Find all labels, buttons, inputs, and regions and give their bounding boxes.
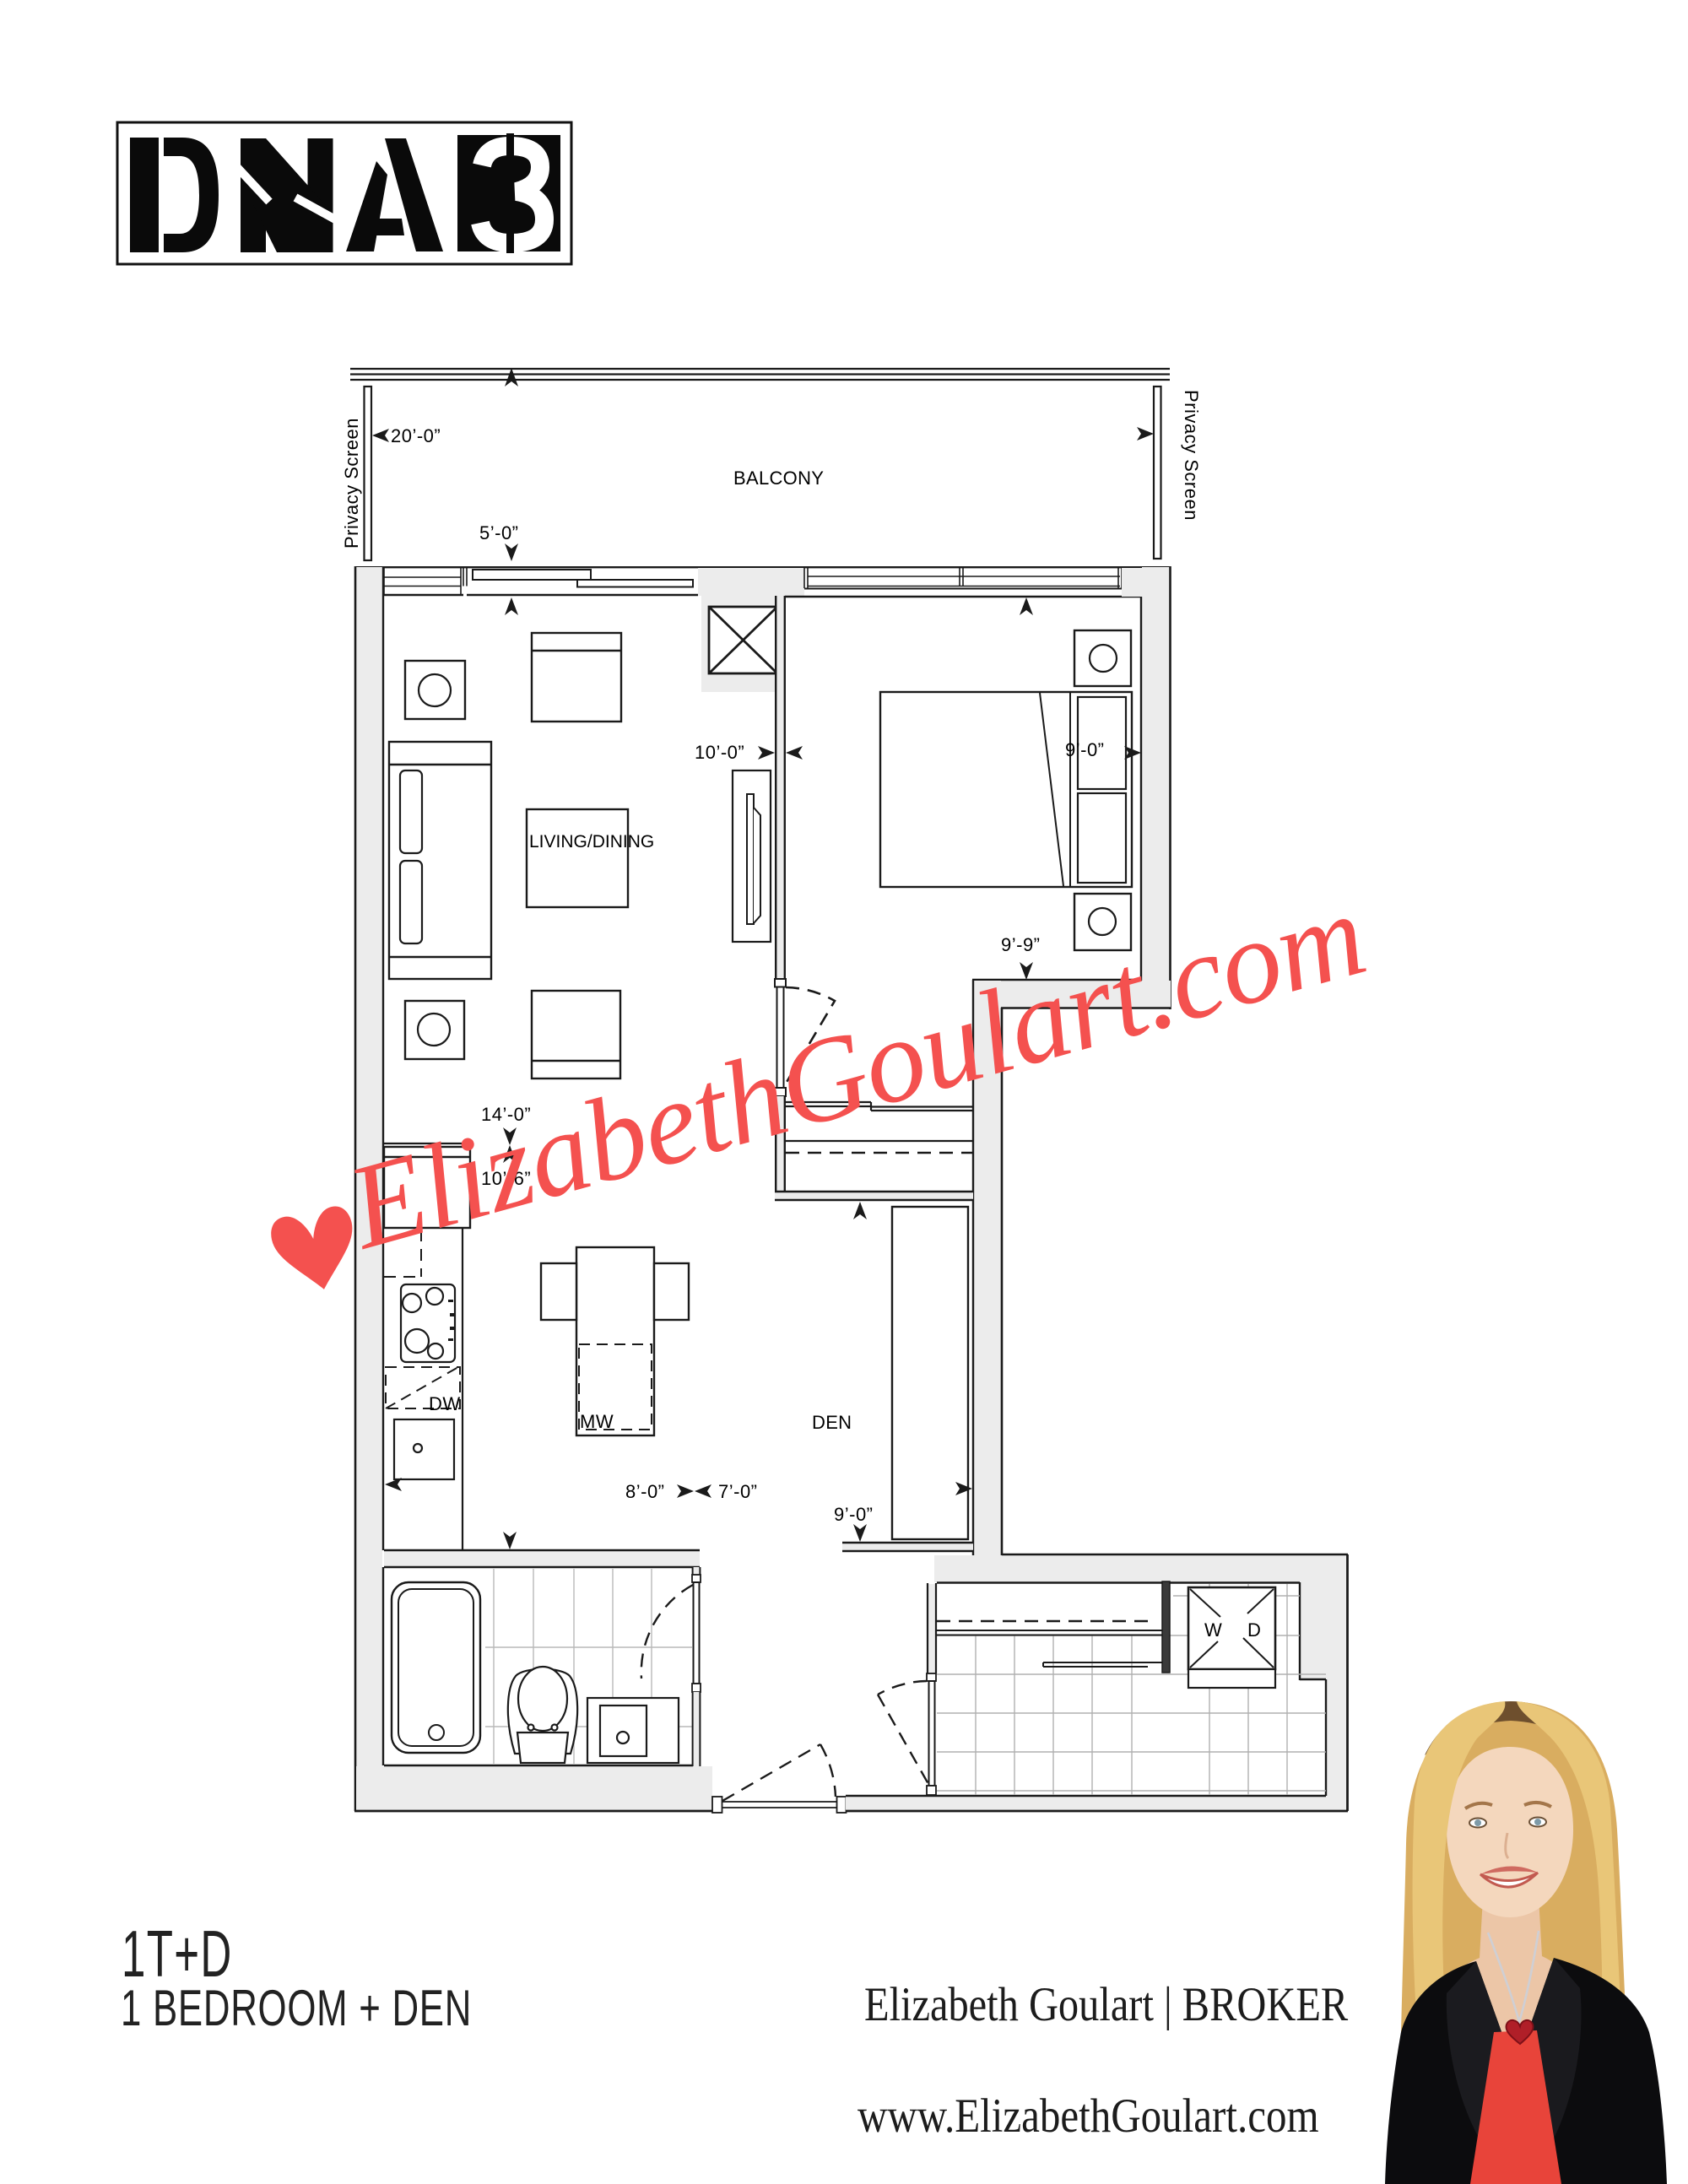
svg-text:MW: MW <box>580 1411 614 1432</box>
svg-text:10’-0”: 10’-0” <box>695 742 744 763</box>
svg-text:DW: DW <box>429 1393 461 1414</box>
svg-text:DEN: DEN <box>812 1412 852 1433</box>
svg-text:W: W <box>1204 1619 1222 1641</box>
svg-text:www.ElizabethGoulart.com: www.ElizabethGoulart.com <box>858 2090 1319 2143</box>
svg-text:Privacy Screen: Privacy Screen <box>341 418 362 549</box>
svg-text:BALCONY: BALCONY <box>733 468 824 489</box>
svg-text:20’-0”: 20’-0” <box>391 425 441 446</box>
svg-text:8’-0”: 8’-0” <box>625 1481 665 1502</box>
svg-text:9’-0”: 9’-0” <box>834 1504 874 1525</box>
svg-text:Elizabeth Goulart | BROKER: Elizabeth Goulart | BROKER <box>864 1978 1349 2030</box>
svg-text:7’-0”: 7’-0” <box>718 1481 758 1502</box>
svg-text:5’-0”: 5’-0” <box>479 522 519 543</box>
svg-text:1 BEDROOM + DEN: 1 BEDROOM + DEN <box>121 1980 472 2036</box>
svg-text:9’-0”: 9’-0” <box>1065 739 1105 760</box>
svg-text:Privacy Screen: Privacy Screen <box>1181 390 1202 521</box>
svg-text:LIVING/DINING: LIVING/DINING <box>529 832 654 851</box>
svg-text:D: D <box>1247 1619 1261 1641</box>
